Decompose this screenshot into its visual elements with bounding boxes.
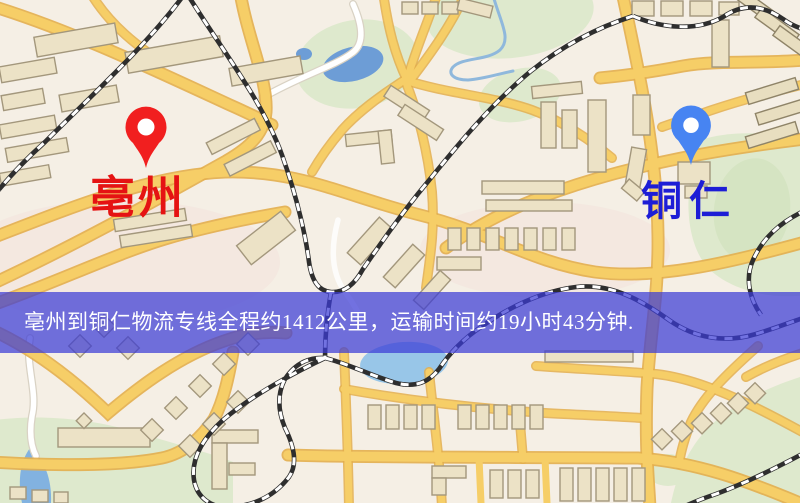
route-info-text: 亳州到铜仁物流专线全程约1412公里，运输时间约19小时43分钟. <box>0 292 800 353</box>
map-screenshot: 亳州 铜仁 亳州到铜仁物流专线全程约1412公里，运输时间约19小时43分钟. <box>0 0 800 503</box>
destination-city-label: 铜仁 <box>641 181 737 222</box>
map-canvas <box>0 0 800 503</box>
origin-city-label: 亳州 <box>90 176 186 221</box>
route-info-banner: 亳州到铜仁物流专线全程约1412公里，运输时间约19小时43分钟. <box>0 292 800 353</box>
